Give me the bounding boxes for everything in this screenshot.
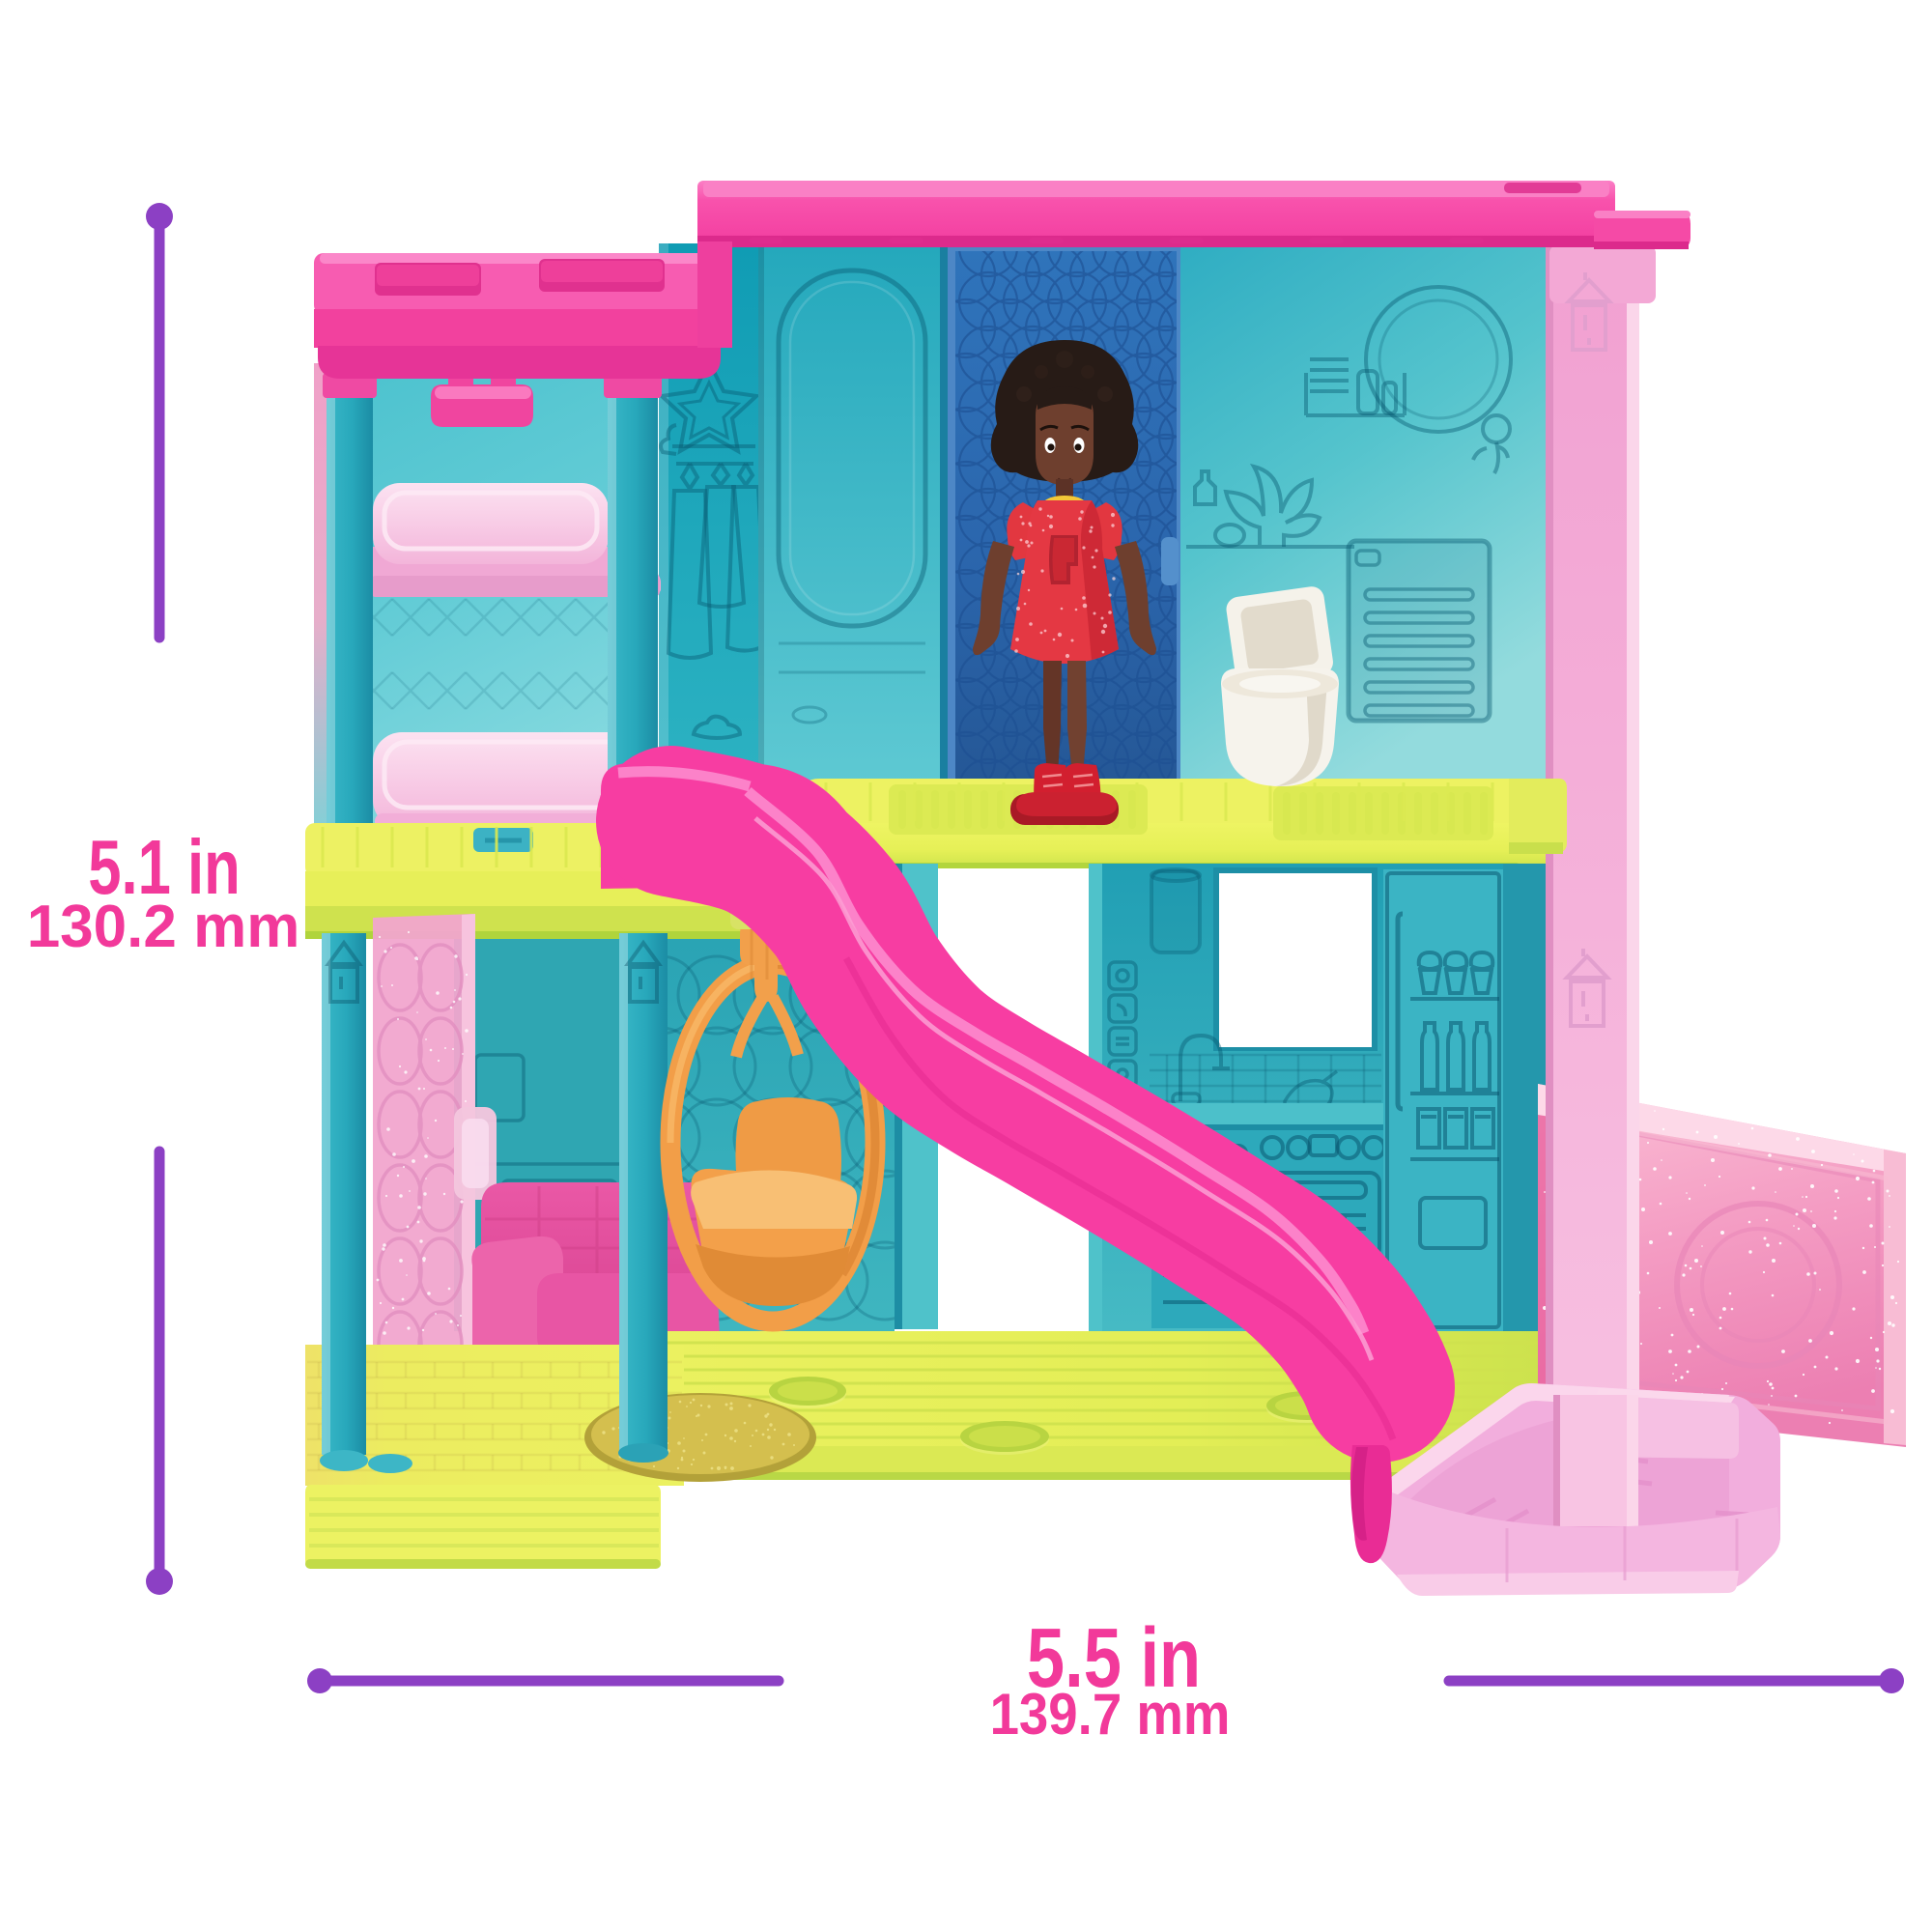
svg-text:130.2 mm: 130.2 mm bbox=[27, 894, 300, 960]
svg-text:139.7 mm: 139.7 mm bbox=[990, 1683, 1231, 1747]
